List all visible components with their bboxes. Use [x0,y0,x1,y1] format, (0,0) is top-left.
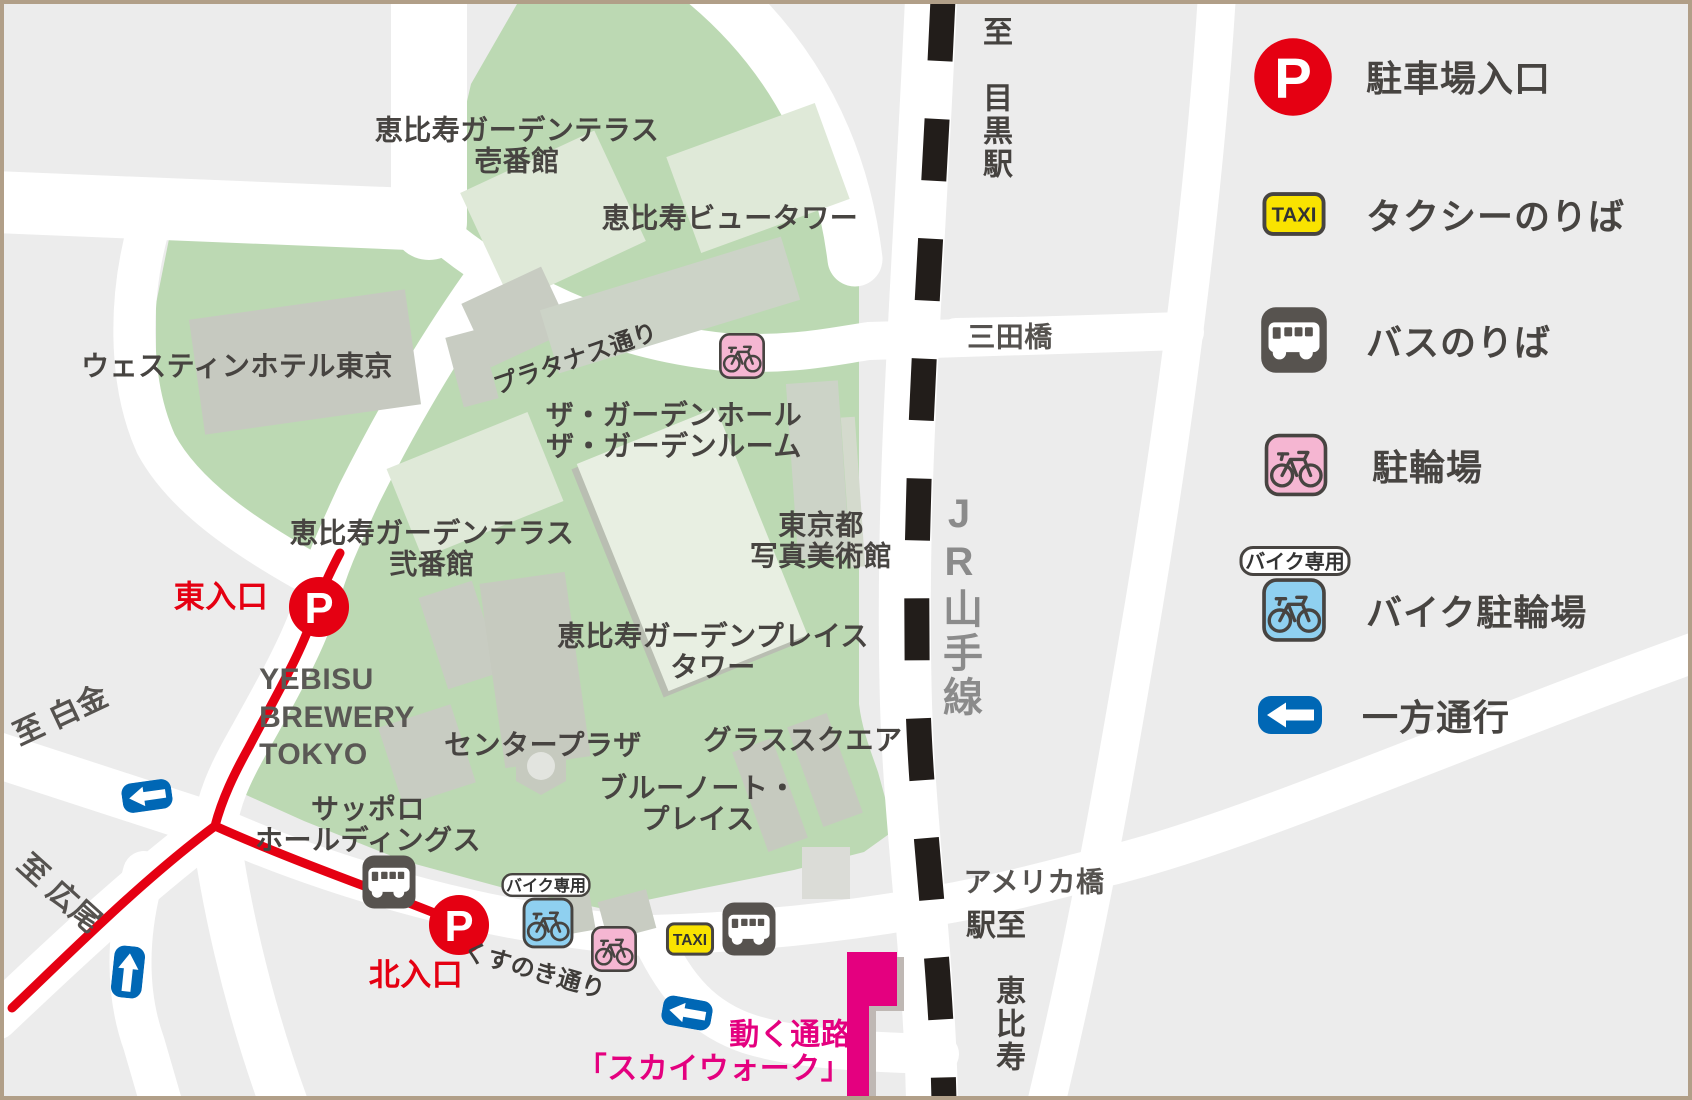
legend-parking-icon [1254,38,1332,116]
bicycle-parking-icon-north [720,334,763,377]
map-canvas: P TAXI [4,4,1688,1096]
motorbike-parking-icon-map [524,899,572,947]
legend-motorbike-icon [1264,580,1324,640]
legend-taxi-icon [1264,194,1323,234]
legend-oneway-icon [1258,696,1322,734]
oneway-arrow-icon-south [110,945,146,1000]
bicycle-parking-icon-south [592,927,635,970]
bus-stop-icon-west [362,855,415,908]
bike-only-badge-map [503,874,590,896]
legend-bicycle-icon [1267,436,1326,495]
legend-bike-only-badge [1241,548,1349,575]
skywalk-shape [847,952,904,1096]
parking-entrance-icon-north [429,895,489,955]
taxi-stand-icon [667,924,712,954]
parking-entrance-icon-east [289,577,349,637]
legend-bus-icon [1261,307,1327,373]
bus-stop-icon-south [722,902,775,955]
area-access-map: P TAXI [0,0,1692,1100]
